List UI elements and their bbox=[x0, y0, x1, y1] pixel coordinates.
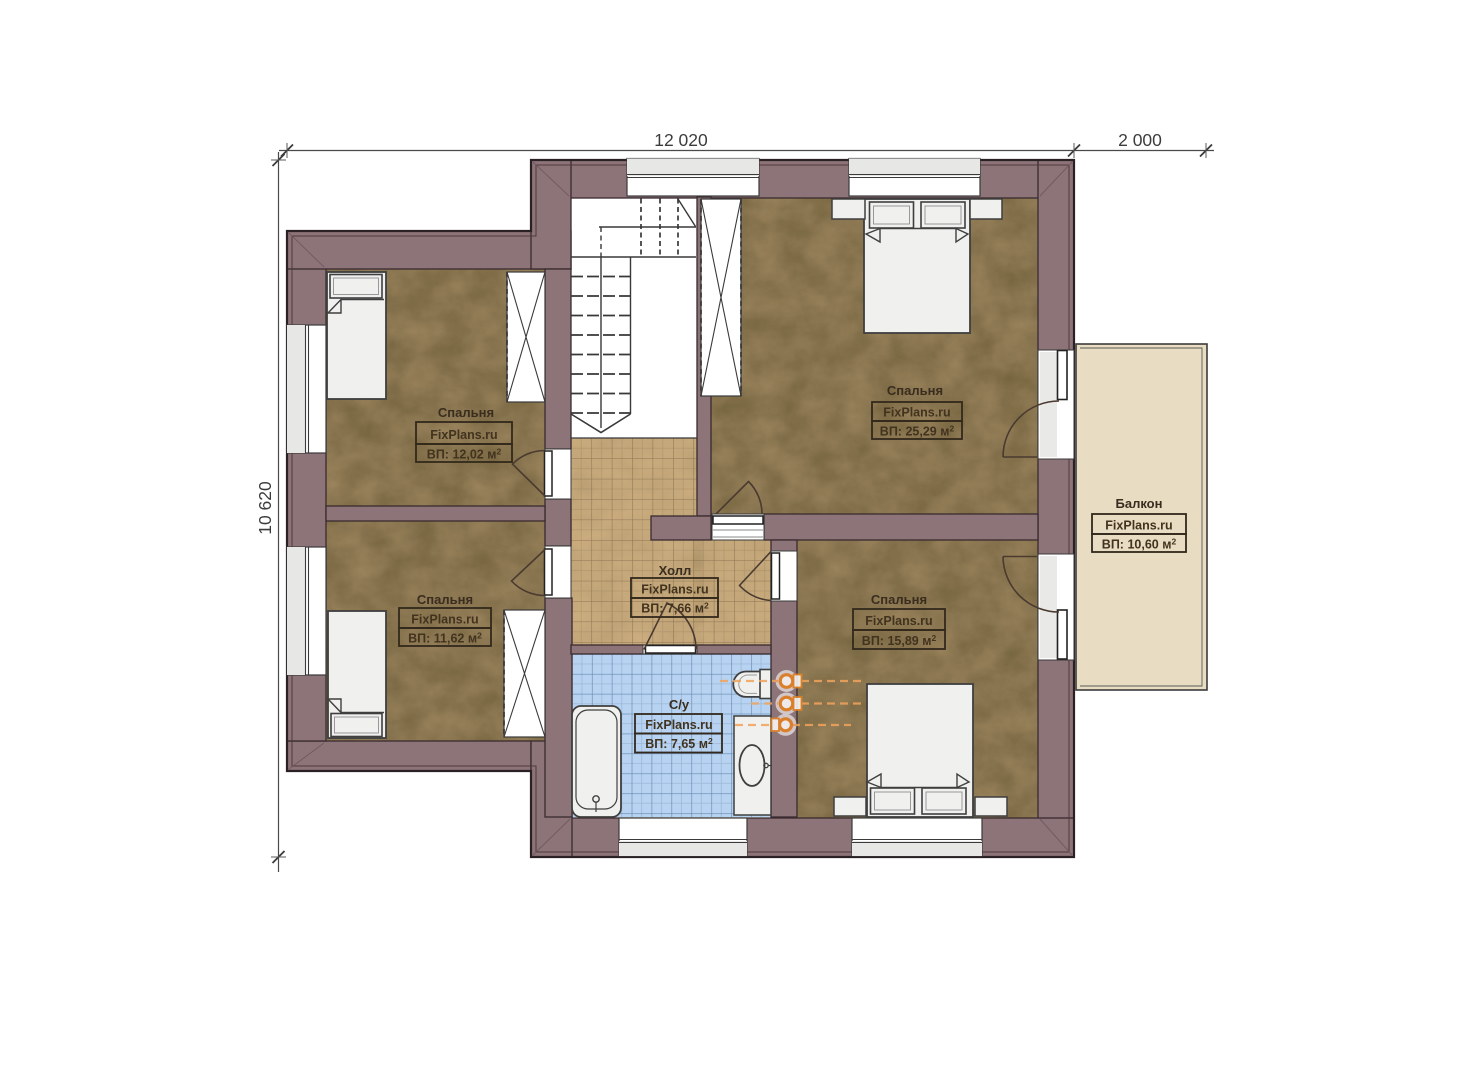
svg-text:С/у: С/у bbox=[669, 697, 690, 712]
svg-text:ВП: 11,62 м2: ВП: 11,62 м2 bbox=[408, 631, 482, 646]
svg-text:FixPlans.ru: FixPlans.ru bbox=[641, 583, 708, 597]
svg-text:ВП: 12,02 м2: ВП: 12,02 м2 bbox=[427, 447, 502, 462]
svg-text:Балкон: Балкон bbox=[1116, 496, 1163, 511]
svg-text:ВП: 25,29 м2: ВП: 25,29 м2 bbox=[880, 424, 955, 439]
svg-text:Спальня: Спальня bbox=[887, 383, 943, 398]
svg-text:Спальня: Спальня bbox=[871, 592, 927, 607]
svg-text:12 020: 12 020 bbox=[654, 130, 708, 150]
svg-text:ВП: 7,65 м2: ВП: 7,65 м2 bbox=[645, 736, 713, 751]
svg-text:FixPlans.ru: FixPlans.ru bbox=[883, 406, 950, 420]
svg-text:FixPlans.ru: FixPlans.ru bbox=[645, 718, 712, 732]
svg-text:2 000: 2 000 bbox=[1118, 130, 1162, 150]
svg-text:FixPlans.ru: FixPlans.ru bbox=[411, 613, 478, 627]
svg-text:FixPlans.ru: FixPlans.ru bbox=[865, 614, 932, 628]
svg-text:Спальня: Спальня bbox=[438, 405, 494, 420]
svg-text:ВП: 10,60 м2: ВП: 10,60 м2 bbox=[1102, 537, 1177, 552]
svg-text:Холл: Холл bbox=[659, 563, 692, 578]
svg-text:ВП: 7,66 м2: ВП: 7,66 м2 bbox=[641, 601, 709, 616]
svg-text:FixPlans.ru: FixPlans.ru bbox=[1105, 519, 1172, 533]
svg-text:FixPlans.ru: FixPlans.ru bbox=[430, 428, 497, 442]
svg-text:10 620: 10 620 bbox=[255, 481, 275, 535]
svg-text:Спальня: Спальня bbox=[417, 592, 473, 607]
svg-text:ВП: 15,89 м2: ВП: 15,89 м2 bbox=[862, 633, 937, 648]
